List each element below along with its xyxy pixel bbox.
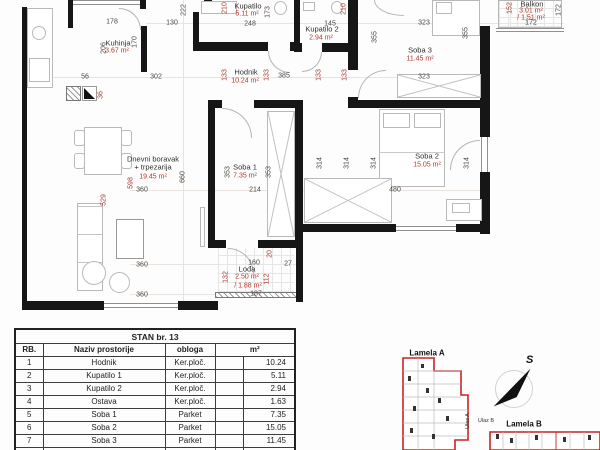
col-header-naziv: Naziv prostorije <box>43 344 165 357</box>
dim-label: 36 <box>98 91 105 99</box>
room-area-kupatilo2: 2.94 m² <box>309 35 333 42</box>
dim-label: 323 <box>418 74 430 81</box>
door-arc <box>374 0 404 16</box>
wall <box>456 224 490 232</box>
door-arc <box>358 70 386 98</box>
room-area-lodja-half: / 1.88 m² <box>234 283 262 290</box>
dim-label: 360 <box>136 187 148 194</box>
table-title: STAN br. 13 <box>15 329 295 344</box>
wall <box>348 0 358 70</box>
dining-table <box>84 127 122 175</box>
table-row: 5Soba 1Parket7.35 <box>15 409 295 422</box>
compass-north-label: S <box>526 354 533 366</box>
dim-label: 133 <box>264 69 271 81</box>
room-schedule-table: STAN br. 13 RB. Naziv prostorije obloga … <box>14 328 298 450</box>
wall <box>294 0 300 44</box>
dim-label: 480 <box>389 187 401 194</box>
dim-label: 248 <box>244 21 256 28</box>
dim-label: 660 <box>180 171 187 183</box>
dim-label: 214 <box>249 187 261 194</box>
room-area-kupatilo: 5.11 m² <box>235 11 258 18</box>
armchair <box>82 261 106 285</box>
wall <box>296 240 303 302</box>
dim-label: 598 <box>128 177 135 189</box>
wall <box>22 301 104 310</box>
wall <box>140 0 146 9</box>
door-arc <box>119 8 141 30</box>
dim-label: 314 <box>317 157 324 169</box>
dim-label: 302 <box>150 74 162 81</box>
room-area-lodja: 2.50 m² <box>235 274 259 281</box>
wardrobe <box>397 74 481 98</box>
col-header-obloga: obloga <box>165 344 215 357</box>
toilet <box>274 1 287 15</box>
lamela-b-label: Lamela B <box>506 420 542 429</box>
dim-label: 132 <box>223 271 230 283</box>
room-label-soba1: Soba 1 <box>233 163 257 172</box>
table-row: 7Soba 3Parket11.45 <box>15 435 295 448</box>
dim-label: 170 <box>132 36 139 48</box>
floor-plan-sheet: Kuhinja 3.67 m² Kupatilo 5.11 m² Kupatil… <box>0 0 600 450</box>
room-area-balkon: 3.01 m² <box>519 8 543 15</box>
wall <box>348 100 484 108</box>
dim-label: 210 <box>341 3 348 15</box>
wall <box>300 224 396 232</box>
dim-label: 314 <box>344 157 351 169</box>
armchair <box>109 272 130 293</box>
dim-label: 355 <box>463 27 470 39</box>
dim-label: 222 <box>181 4 188 16</box>
room-label-soba3: Soba 3 <box>408 46 432 55</box>
dim-label: 56 <box>81 74 89 81</box>
dim-label: 206 <box>101 42 108 54</box>
dim-label: 187 <box>250 291 262 298</box>
dim-label: 353 <box>266 166 273 178</box>
room-label-hodnik: Hodnik <box>234 68 257 77</box>
ulaz-b-label: Ulaz B <box>478 418 494 424</box>
dim-label: 133 <box>342 69 349 81</box>
table-row: 4OstavaKer.ploč.1.63 <box>15 396 295 409</box>
window <box>73 0 140 5</box>
dim-label: 173 <box>265 6 272 18</box>
room-area-dnevni: 19.45 m² <box>139 174 167 181</box>
room-area-kuhinja: 3.67 m² <box>105 48 129 55</box>
dim-label: 133 <box>316 69 323 81</box>
table-row: 1HodnikKer.ploč.10.24 <box>15 357 295 370</box>
shaft <box>66 86 81 101</box>
kitchen-sink <box>32 26 46 40</box>
room-area-soba1: 7.35 m² <box>233 173 257 180</box>
room-label-kuhinja: Kuhinja <box>105 39 130 48</box>
lamela-a-label: Lamela A <box>409 349 444 358</box>
wall <box>208 240 226 248</box>
room-area-hodnik: 10.24 m² <box>231 78 259 85</box>
site-key-plan: Lamela A Lamela B Ulaz B Ulaz A S <box>388 336 600 450</box>
dim-label: 314 <box>464 157 471 169</box>
wall <box>178 301 218 310</box>
coffee-table <box>116 219 144 259</box>
chair <box>121 130 132 146</box>
dim-label: 160 <box>248 260 260 267</box>
window <box>104 303 178 308</box>
dim-label: 360 <box>136 262 148 269</box>
room-label-dnevni-2: + trpezarija <box>134 163 171 172</box>
room-label-soba2: Soba 2 <box>415 152 439 161</box>
wall <box>141 26 147 72</box>
dim-label: 529 <box>101 194 108 206</box>
pillow <box>436 2 452 14</box>
dim-label: 360 <box>136 292 148 299</box>
room-area-soba3: 11.45 m² <box>406 56 433 63</box>
door-arc <box>222 108 252 138</box>
dim-label: 178 <box>106 19 118 26</box>
dim-label: 172 <box>525 20 537 27</box>
wall <box>480 26 490 137</box>
dim-label: 323 <box>418 20 430 27</box>
dim-label: 112 <box>264 273 271 284</box>
wall <box>208 100 215 248</box>
shaft-marker <box>82 86 97 101</box>
dim-label: 20 <box>267 250 274 258</box>
ulaz-a-label: Ulaz A <box>465 413 471 429</box>
dim-label: 152 <box>507 2 514 14</box>
kitchen-stove <box>29 58 50 82</box>
table-row: 6Soba 2Parket15.05 <box>15 422 295 435</box>
guide-line <box>183 0 184 302</box>
table-row: 2Kupatilo 1Ker.ploč.5.11 <box>15 370 295 383</box>
wardrobe <box>304 178 392 223</box>
wall <box>294 43 302 52</box>
door-arc <box>268 51 290 73</box>
dim-label: 355 <box>372 31 379 43</box>
dim-label: 353 <box>225 166 232 178</box>
table-row: 3Kupatilo 2Ker.ploč.2.94 <box>15 383 295 396</box>
window <box>496 28 564 32</box>
chair <box>74 153 85 169</box>
dim-label: 385 <box>278 73 290 80</box>
dim-label: 145 <box>324 21 336 28</box>
pillow <box>383 113 410 128</box>
pillow <box>414 113 441 128</box>
dim-label: 27 <box>284 261 292 268</box>
dim-label: 130 <box>166 20 178 27</box>
floor-plan: Kuhinja 3.67 m² Kupatilo 5.11 m² Kupatil… <box>0 0 600 328</box>
dim-label: 172 <box>556 4 563 16</box>
window <box>396 226 456 231</box>
chair <box>74 130 85 146</box>
room-area-soba2: 15.05 m² <box>413 162 441 169</box>
tv-stand <box>200 207 205 247</box>
dim-label: 314 <box>371 157 378 169</box>
col-header-rb: RB. <box>15 344 43 357</box>
dim-label: 133 <box>222 69 229 81</box>
wall <box>193 42 268 51</box>
shaft-triangle <box>84 88 95 99</box>
col-header-m2: m² <box>215 344 295 357</box>
balcony-door-window <box>481 137 488 172</box>
desk-chair <box>452 203 470 213</box>
washbasin <box>303 2 315 11</box>
dim-label: 210 <box>222 2 229 14</box>
bathtub <box>201 1 237 14</box>
room-label-kupatilo: Kupatilo <box>234 2 261 11</box>
